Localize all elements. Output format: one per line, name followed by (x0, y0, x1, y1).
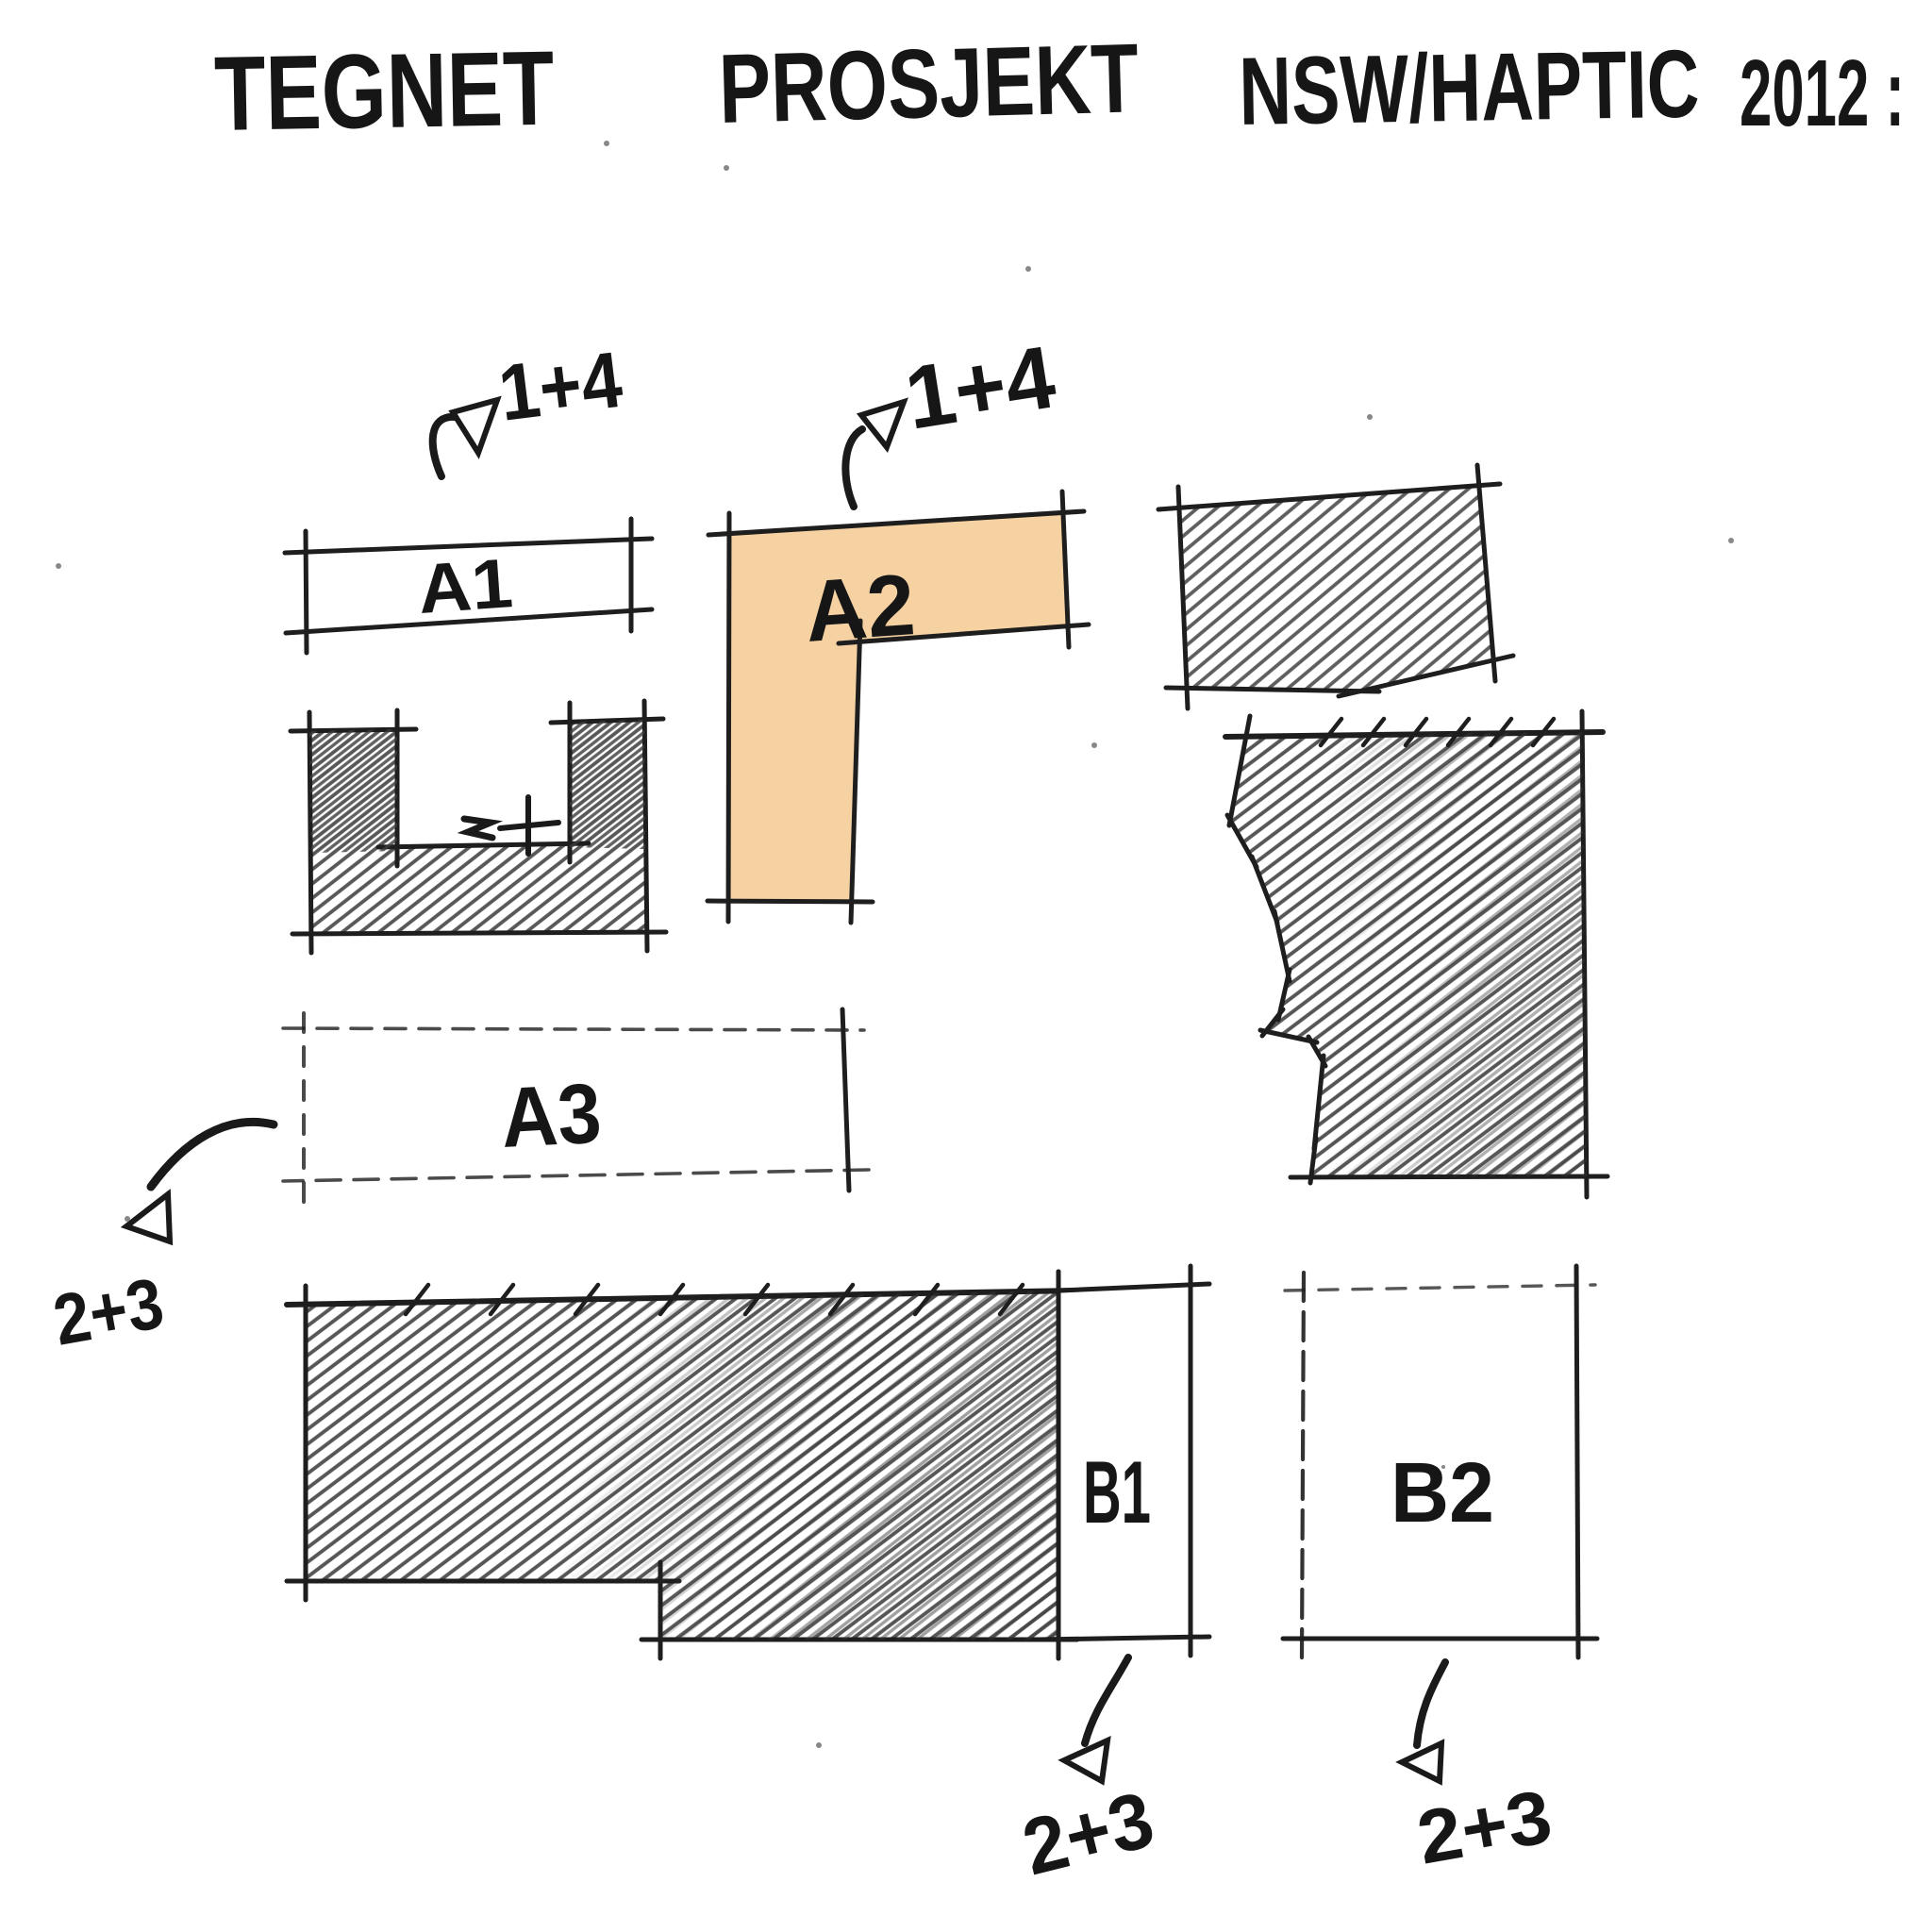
svg-text:A3: A3 (499, 1067, 604, 1166)
svg-text:NSW/HAPTIC: NSW/HAPTIC (1238, 29, 1700, 144)
svg-text:TEGNET: TEGNET (213, 29, 555, 153)
svg-text:A1: A1 (415, 543, 515, 628)
svg-text:PROSJEKT: PROSJEKT (718, 24, 1141, 144)
svg-text:B2: B2 (1391, 1446, 1494, 1541)
svg-text:B1: B1 (1083, 1442, 1151, 1541)
svg-text:2012 :: 2012 : (1740, 41, 1905, 146)
svg-text:A2: A2 (802, 557, 918, 660)
svg-text:1+4: 1+4 (494, 335, 627, 438)
